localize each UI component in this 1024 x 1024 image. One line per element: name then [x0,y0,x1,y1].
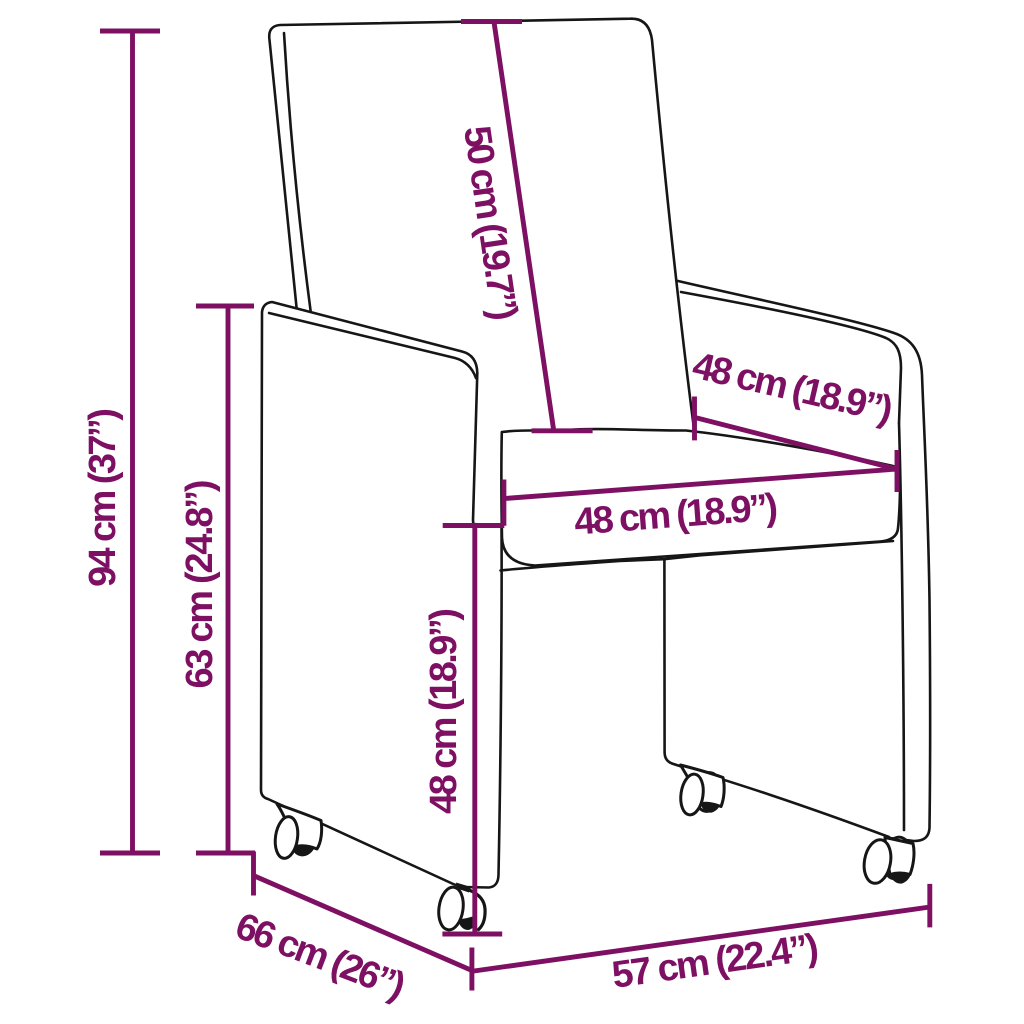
svg-text:48 cm (18.9”): 48 cm (18.9”) [423,608,465,814]
svg-text:94 cm (37”): 94 cm (37”) [82,408,124,587]
svg-text:63 cm (24.8”): 63 cm (24.8”) [179,480,221,689]
